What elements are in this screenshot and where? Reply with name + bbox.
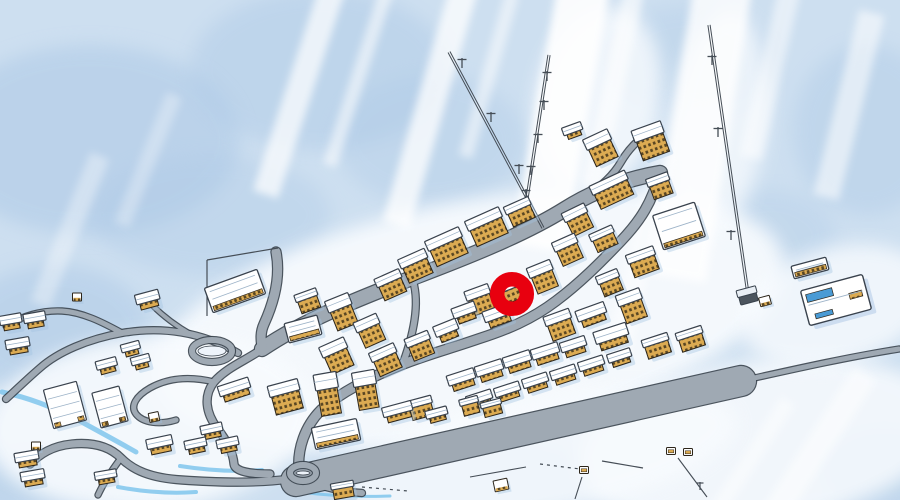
- drag-lift-cabin: [580, 467, 589, 474]
- drag-lift-cabin: [684, 449, 693, 456]
- ski-resort-map: [0, 0, 900, 500]
- building-tower: [330, 480, 358, 500]
- drag-lift-cabin: [667, 448, 676, 455]
- map-canvas: [0, 0, 900, 500]
